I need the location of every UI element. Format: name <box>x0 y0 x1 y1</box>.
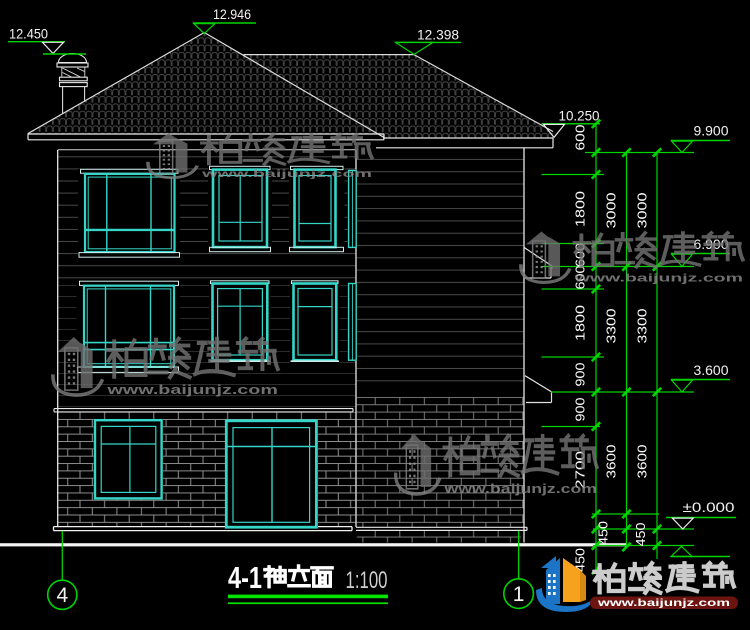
svg-text:3600: 3600 <box>635 445 650 479</box>
svg-text:3300: 3300 <box>604 309 619 344</box>
svg-text:1800: 1800 <box>573 191 588 227</box>
svg-text:12.398: 12.398 <box>417 28 459 43</box>
svg-text:10.250: 10.250 <box>559 109 600 124</box>
svg-text:450: 450 <box>633 523 648 547</box>
svg-text:900: 900 <box>573 363 588 387</box>
svg-text:1: 1 <box>513 583 525 606</box>
svg-text:9.900: 9.900 <box>694 124 729 139</box>
svg-text:www.baijunjz.com: www.baijunjz.com <box>597 597 730 609</box>
svg-text:450: 450 <box>596 521 611 545</box>
svg-text:1800: 1800 <box>573 305 588 341</box>
svg-text:12.450: 12.450 <box>9 27 48 42</box>
svg-text:3600: 3600 <box>604 445 619 479</box>
svg-text:12.946: 12.946 <box>213 7 251 22</box>
svg-text:3300: 3300 <box>635 309 650 344</box>
svg-text:900: 900 <box>573 398 588 422</box>
svg-text:600: 600 <box>573 125 588 151</box>
svg-text:4: 4 <box>56 584 68 607</box>
svg-text:3000: 3000 <box>635 193 650 229</box>
svg-text:3000: 3000 <box>604 193 619 229</box>
svg-text:4-1: 4-1 <box>228 560 262 595</box>
svg-text:3.600: 3.600 <box>694 363 729 378</box>
svg-text:±0.000: ±0.000 <box>683 500 736 515</box>
svg-text:1:100: 1:100 <box>346 567 388 594</box>
